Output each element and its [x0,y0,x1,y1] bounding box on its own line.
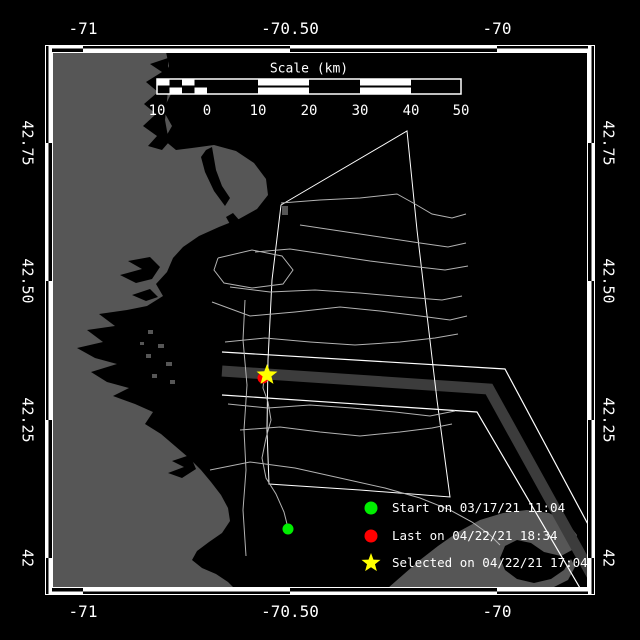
legend-selected-label: Selected on 04/22/21 17:04 [392,557,588,570]
lon-label-bottom-7050: -70.50 [261,604,319,620]
map-plot-window: -71 -70.50 -70 -71 -70.50 -70 42.75 42.5… [0,0,640,640]
lon-label-top-70: -70 [483,21,512,37]
legend-start-label: Start on 03/17/21 11:04 [392,502,565,515]
island [170,380,175,384]
island [282,206,288,215]
scalebar-tick-30: 30 [352,104,369,118]
legend-marker-1 [365,530,378,543]
legend-marker-0 [365,502,378,515]
lat-label-left-4250: 42.50 [20,258,35,303]
lat-label-right-42: 42 [601,549,616,567]
map-plot-area [52,52,622,608]
lon-label-top-7050: -70.50 [261,21,319,37]
lon-label-bottom-70: -70 [483,604,512,620]
lat-label-right-4250: 42.50 [601,258,616,303]
lat-label-left-4275: 42.75 [20,120,35,165]
scalebar-tick-40: 40 [403,104,420,118]
scalebar-tick-20: 20 [301,104,318,118]
scalebar-tick-0: 0 [203,104,211,118]
scalebar-title: Scale (km) [270,63,348,76]
lon-label-bottom-71: -71 [69,604,98,620]
island [152,374,157,378]
lon-label-top-71: -71 [69,21,98,37]
lat-label-right-4225: 42.25 [601,397,616,442]
island [166,362,172,366]
island [148,330,153,334]
scale-bar [157,79,461,94]
start-position-marker [283,524,294,535]
map-canvas [0,0,640,640]
lat-label-left-4225: 42.25 [20,397,35,442]
lat-label-left-42: 42 [20,549,35,567]
island [146,354,151,358]
legend-last-label: Last on 04/22/21 18:34 [392,530,558,543]
scalebar-tick-10L: 10 [149,104,166,118]
lat-label-right-4275: 42.75 [601,120,616,165]
scalebar-tick-10: 10 [250,104,267,118]
island [158,344,164,348]
island [140,342,144,345]
scalebar-tick-50: 50 [453,104,470,118]
